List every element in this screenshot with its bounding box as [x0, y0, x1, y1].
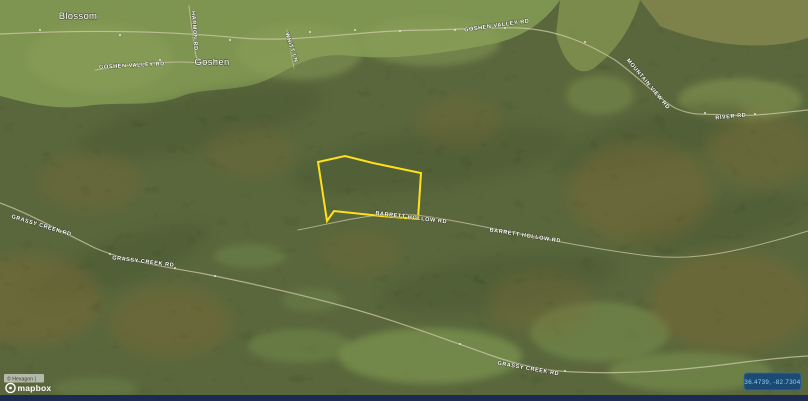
mapbox-logo-icon — [9, 387, 12, 390]
attribution[interactable]: © Hexagon | — [4, 374, 44, 383]
map-viewport: Blossom Goshen GOSHEN VALLEY RD GOSHEN V… — [0, 0, 808, 401]
mapbox-logo-text: mapbox — [18, 383, 52, 393]
place-label-blossom: Blossom — [59, 11, 98, 22]
map-canvas[interactable]: Blossom Goshen GOSHEN VALLEY RD GOSHEN V… — [0, 0, 808, 401]
coordinates-badge: 36.4739, -82.7304 — [744, 373, 801, 390]
place-label-goshen: Goshen — [194, 57, 229, 68]
coordinates-text: 36.4739, -82.7304 — [744, 379, 800, 386]
terrain — [0, 0, 808, 401]
bottom-bar — [0, 395, 808, 401]
attribution-text: © Hexagon | — [7, 376, 36, 383]
